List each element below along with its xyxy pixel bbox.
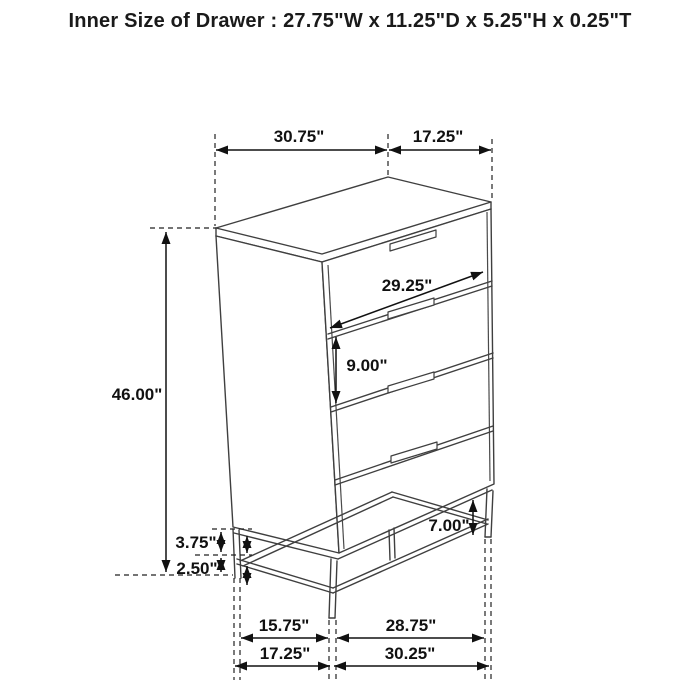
label-drawer-width: 29.25": [382, 276, 433, 295]
label-leg-height: 7.00": [428, 516, 469, 535]
chest-dimension-drawing: 30.75" 17.25" 29.25" 9.00" 46.00" 7.00" …: [0, 0, 700, 700]
leg-back-right-inner: [394, 528, 395, 558]
stretcher-left-bottom: [237, 564, 333, 593]
leg-front-left-outer: [329, 559, 331, 618]
leg-back-left-outer: [233, 529, 235, 578]
dimension-diagram-page: { "title": "Inner Size of Drawer : 27.75…: [0, 0, 700, 700]
label-drawer-height: 9.00": [346, 356, 387, 375]
label-bottom-left-outer: 17.25": [260, 644, 311, 663]
stretcher-left-top: [237, 559, 333, 588]
chest-side-panel: [216, 236, 339, 553]
label-bottom-right-outer: 30.25": [385, 644, 436, 663]
label-bottom-left-inner: 15.75": [259, 616, 310, 635]
label-overall-height: 46.00": [112, 385, 163, 404]
leg-front-right-inner: [491, 491, 493, 537]
leg-back-right-outer: [389, 530, 390, 560]
label-base-lower-gap: 2.50": [176, 559, 217, 578]
label-base-upper-gap: 3.75": [175, 533, 216, 552]
leg-back-left-inner: [239, 530, 241, 578]
label-top-left-span: 30.75": [274, 127, 325, 146]
leg-front-left-inner: [335, 561, 337, 618]
leg-front-right-outer: [485, 489, 487, 537]
label-bottom-right-inner: 28.75": [386, 616, 437, 635]
label-top-right-span: 17.25": [413, 127, 464, 146]
